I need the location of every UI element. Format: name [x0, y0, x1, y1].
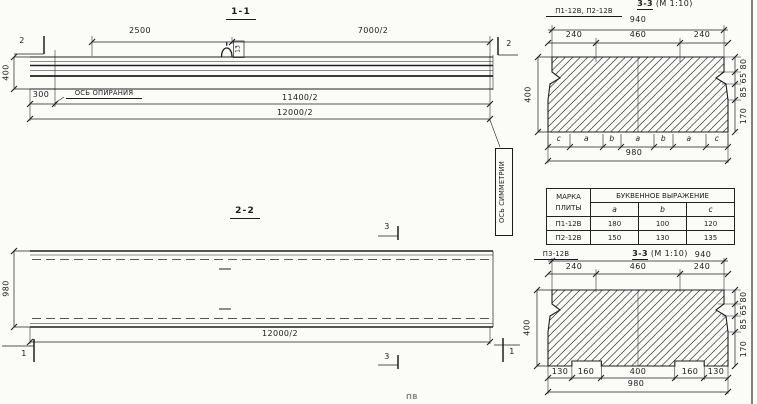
dim-240-top-left: 240	[554, 31, 594, 40]
dim-85-top: 85	[740, 82, 748, 102]
table-subheader-a: а	[591, 203, 639, 217]
s11-lifting-loop	[222, 43, 233, 58]
table-header-row: МАРКА ПЛИТЫ БУКВЕННОЕ ВЫРАЖЕНИЕ	[547, 189, 735, 203]
letter-a-1: а	[580, 135, 594, 143]
dim-240-top-right: 240	[682, 31, 722, 40]
s22-slab-inner-lines	[30, 255, 493, 324]
section-marker-2-right: 2	[502, 40, 516, 49]
dim-160-right: 160	[678, 368, 702, 377]
letter-a-3: а	[682, 135, 696, 143]
s11-section-marker-ticks	[44, 36, 498, 55]
section-1-1-title: 1-1	[226, 8, 256, 20]
dim-170-bottom: 170	[740, 339, 748, 359]
s22-section-marker-ticks	[34, 226, 503, 369]
dim-300: 300	[27, 91, 55, 100]
dim-160-left: 160	[574, 368, 598, 377]
dim-240-bottom-left: 240	[554, 263, 594, 272]
symmetry-axis-label-box: ОСЬ СИММЕТРИИ	[495, 148, 513, 236]
scale-3-3-top: (М 1:10)	[656, 0, 693, 8]
loop-mark: 13	[235, 42, 243, 57]
letter-a-2: а	[631, 135, 645, 143]
dim-400-bottom-seg: 400	[626, 368, 650, 377]
dim-11400-2: 11400/2	[272, 94, 328, 103]
dim-2500: 2500	[118, 27, 162, 36]
s22-section-marker-underlines	[2, 236, 520, 365]
dim-460-bottom: 460	[618, 263, 658, 272]
dim-7000-2: 7000/2	[348, 27, 398, 36]
plate-label-bottom: П3-12В	[534, 251, 578, 260]
section-marker-1-right: 1	[505, 348, 519, 357]
s22-dim-lines	[14, 251, 490, 342]
plates-label-top: П1-12В, П2-12В	[546, 8, 622, 17]
dim-240-bottom-right: 240	[682, 263, 722, 272]
edge-fragment-text: ПВ	[402, 394, 422, 402]
section-3-3-top-linework	[535, 25, 741, 164]
section-marker-2-left: 2	[15, 37, 29, 46]
section-marker-1-left: 1	[17, 350, 31, 359]
s11-extension-lines	[30, 36, 493, 121]
table-cell-a-p1: 180	[591, 217, 639, 231]
section-marker-3-bottom: 3	[380, 353, 394, 362]
table-cell-mark-p1: П1-12В	[547, 217, 591, 231]
dim-980-s22: 980	[3, 276, 12, 302]
plate-spec-table: МАРКА ПЛИТЫ БУКВЕННОЕ ВЫРАЖЕНИЕ а b с П1…	[546, 188, 735, 245]
table-cell-a-p2: 150	[591, 231, 639, 245]
s11-section-marker-underlines	[14, 54, 518, 55]
table-row-p1: П1-12В 180 100 120	[547, 217, 735, 231]
table-cell-b-p1: 100	[639, 217, 687, 231]
drawing-canvas: 1-1 2500 7000/2 2 2 400 300 ОСЬ ОПИРАНИЯ…	[0, 0, 757, 404]
dim-170-top: 170	[740, 106, 748, 126]
table-subheader-c: с	[687, 203, 735, 217]
letter-b-1: b	[605, 135, 619, 143]
section-marker-3-top: 3	[380, 223, 394, 232]
table-cell-c-p2: 135	[687, 231, 735, 245]
symmetry-axis-label: ОСЬ СИММЕТРИИ	[498, 150, 510, 234]
s11-support-leader	[55, 97, 64, 103]
dim-12000-2-s11: 12000/2	[267, 109, 323, 118]
s11-dim-ticks	[11, 39, 493, 122]
table-cell-mark-p2: П2-12В	[547, 231, 591, 245]
dim-460-top: 460	[618, 31, 658, 40]
s22-break-marks	[219, 269, 231, 309]
dim-400-s33b: 400	[524, 315, 533, 341]
table-row-p2: П2-12В 150 130 135	[547, 231, 735, 245]
letter-b-2: b	[657, 135, 671, 143]
letter-c-1: с	[552, 135, 566, 143]
dim-400-s33t: 400	[525, 82, 534, 108]
s11-symmetry-leader	[490, 120, 500, 147]
table-cell-c-p1: 120	[687, 217, 735, 231]
title-3-3-top: 3-3	[637, 0, 653, 10]
table-header-group: БУКВЕННОЕ ВЫРАЖЕНИЕ	[591, 189, 735, 203]
support-axis-label: ОСЬ ОПИРАНИЯ	[66, 90, 142, 99]
s22-hidden-dashed-lines	[32, 260, 491, 319]
dim-130-left: 130	[548, 368, 572, 377]
title-3-3-bottom: 3-3	[632, 249, 648, 260]
table-header-mark: МАРКА ПЛИТЫ	[547, 189, 591, 217]
dim-980-top: 980	[614, 149, 654, 158]
s11-dim-lines	[14, 42, 490, 119]
dim-12000-2-s22: 12000/2	[252, 330, 308, 339]
dim-980-bottom: 980	[616, 380, 656, 389]
letter-c-2: с	[710, 135, 724, 143]
dim-940-bottom: 940	[683, 251, 723, 260]
section-2-2-linework	[2, 226, 520, 369]
table-cell-b-p2: 130	[639, 231, 687, 245]
section-3-3-top-title: 3-3 (М 1:10)	[626, 0, 704, 9]
table-subheader-b: b	[639, 203, 687, 217]
dim-940-top: 940	[618, 16, 658, 25]
dim-400-s11: 400	[3, 60, 12, 86]
dim-85-bottom: 85	[740, 314, 748, 334]
dim-130-right: 130	[704, 368, 728, 377]
section-2-2-title: 2-2	[230, 207, 260, 219]
